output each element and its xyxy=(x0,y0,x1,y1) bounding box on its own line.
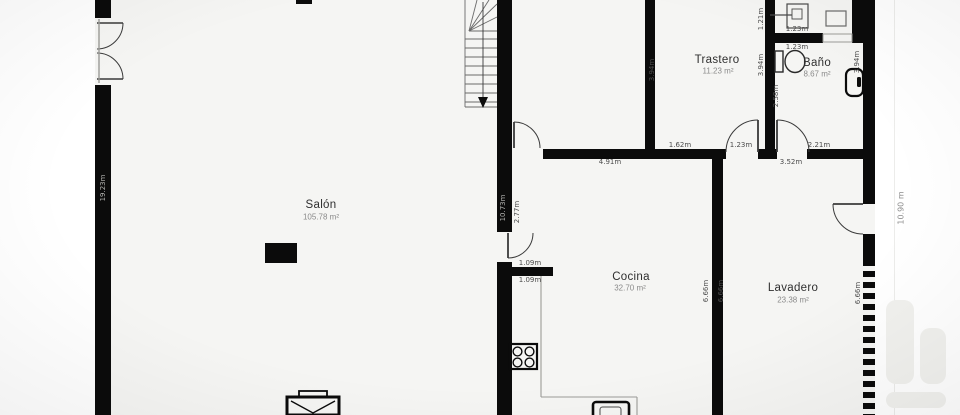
kitchen-sink-icon xyxy=(593,402,629,415)
fireplace-block-icon xyxy=(265,243,297,263)
stairs-icon xyxy=(465,0,497,108)
aseo-opening xyxy=(823,34,852,42)
wall-right-top xyxy=(852,0,875,43)
wall-aseo-bottom xyxy=(770,33,823,43)
kitchen-counter-line xyxy=(541,276,637,415)
aseo-sink-icon xyxy=(770,4,808,28)
stairs-down-arrow-icon xyxy=(478,97,488,108)
door-lavadero-icon xyxy=(833,204,863,234)
door-hall-icon xyxy=(514,122,540,148)
stove-icon xyxy=(510,344,537,369)
wall-stub-top xyxy=(296,0,312,4)
wall-horizontal-1 xyxy=(543,149,726,159)
walls xyxy=(95,0,875,415)
wall-left-main xyxy=(95,85,111,415)
watermark xyxy=(886,300,914,384)
doors xyxy=(97,19,863,258)
wall-right-upper xyxy=(863,43,875,204)
wall-center-upper xyxy=(497,0,512,232)
wall-left-top xyxy=(95,0,111,18)
floorplan-drawing xyxy=(0,0,960,415)
wall-trastero-left xyxy=(645,0,655,159)
floorplan: Salón 105.78 m² Trastero 11.23 m² Baño 8… xyxy=(0,0,960,415)
toilet-icon xyxy=(775,51,805,73)
bidet-icon xyxy=(846,69,863,96)
double-door-icon xyxy=(97,19,123,83)
watermark xyxy=(886,392,946,408)
wall-center-lower xyxy=(497,262,512,415)
door-bano-icon xyxy=(777,120,809,152)
wall-right-mid xyxy=(863,234,875,260)
wall-cocina-lavadero xyxy=(712,159,723,415)
wall-trastero-right xyxy=(765,0,775,159)
wall-kitchen-stub xyxy=(505,267,553,276)
aseo-counter-icon xyxy=(826,11,846,26)
door-cocina-icon xyxy=(508,233,533,258)
fireplace-icon xyxy=(287,391,339,415)
door-trastero-icon xyxy=(726,120,758,152)
watermark xyxy=(920,328,946,384)
